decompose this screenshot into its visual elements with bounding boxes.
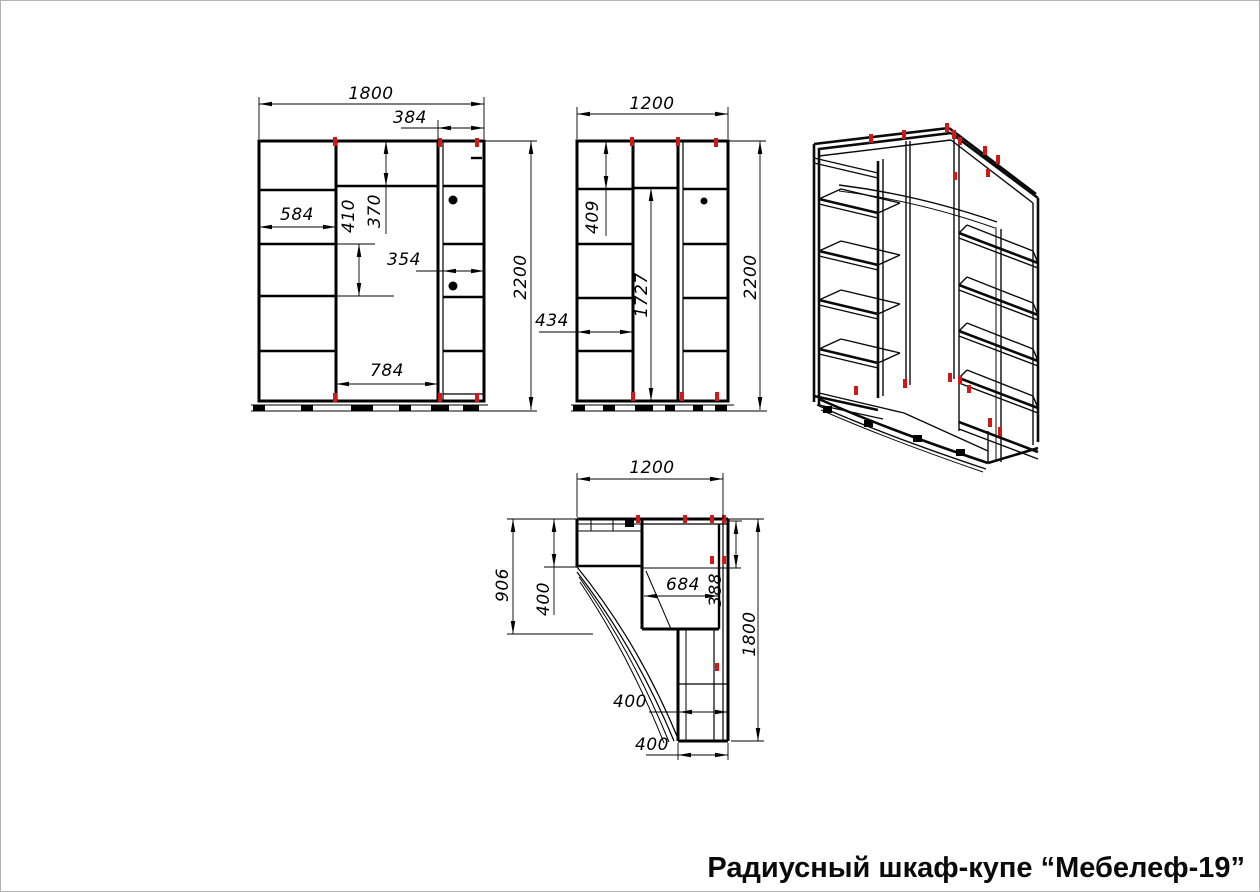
dim-side-total-height: 2200 (741, 254, 761, 299)
dim-side-top-section-height: 409 (583, 200, 603, 234)
plan-dimension-labels: 1200 906 400 684 388 1800 400 400 (493, 458, 760, 755)
dim-plan-left-depth: 906 (493, 568, 513, 602)
dim-front-shelf-spacing: 410 (339, 199, 359, 233)
drawing-sheet: 1800 384 584 370 410 354 784 2200 (0, 0, 1260, 892)
dim-plan-bottom-section-width: 400 (635, 735, 669, 755)
iso-wireframe-lines (814, 128, 1038, 472)
dim-front-shelf-width: 584 (280, 205, 314, 225)
iso-fitting-marks (854, 123, 1002, 436)
dim-side-total-width: 1200 (629, 94, 674, 114)
front-dimension-labels: 1800 384 584 370 410 354 784 2200 (280, 84, 531, 381)
drawing-title: Радиусный шкаф-купе “Мебелеф-19” (707, 852, 1245, 885)
dim-plan-right-depth: 1800 (740, 611, 760, 656)
plan-structure-lines (577, 519, 741, 743)
dim-front-total-height: 2200 (511, 254, 531, 299)
dim-plan-left-section-depth: 400 (534, 582, 554, 616)
dim-front-total-width: 1800 (348, 84, 393, 104)
dim-front-middle-width: 784 (370, 361, 404, 381)
dim-front-right-section-width: 384 (393, 108, 427, 128)
side-structure-lines (571, 141, 767, 411)
dim-plan-corner-inner-width: 684 (666, 575, 700, 595)
hook-dot (449, 282, 458, 291)
dim-side-shelf-section-width: 434 (535, 311, 569, 331)
dim-plan-door-opening-width: 400 (613, 692, 647, 712)
dim-side-open-height: 1727 (632, 272, 652, 317)
dim-plan-total-width: 1200 (629, 458, 674, 478)
front-elevation-view: 1800 384 584 370 410 354 784 2200 (251, 84, 537, 411)
dim-front-top-section-height: 370 (365, 194, 385, 228)
hook-dot (449, 196, 458, 205)
isometric-view (814, 123, 1038, 472)
side-elevation-view: 1200 409 1727 2200 434 (535, 94, 767, 411)
side-dimension-lines (539, 107, 766, 410)
dim-front-right-inner-width: 354 (387, 250, 421, 270)
hook-dot (701, 198, 708, 205)
technical-drawing-canvas: 1800 384 584 370 410 354 784 2200 (1, 1, 1260, 892)
side-fitting-marks (630, 137, 719, 401)
dim-plan-right-section-width: 388 (706, 573, 726, 607)
plan-view: 1200 906 400 684 388 1800 400 400 (493, 458, 764, 760)
